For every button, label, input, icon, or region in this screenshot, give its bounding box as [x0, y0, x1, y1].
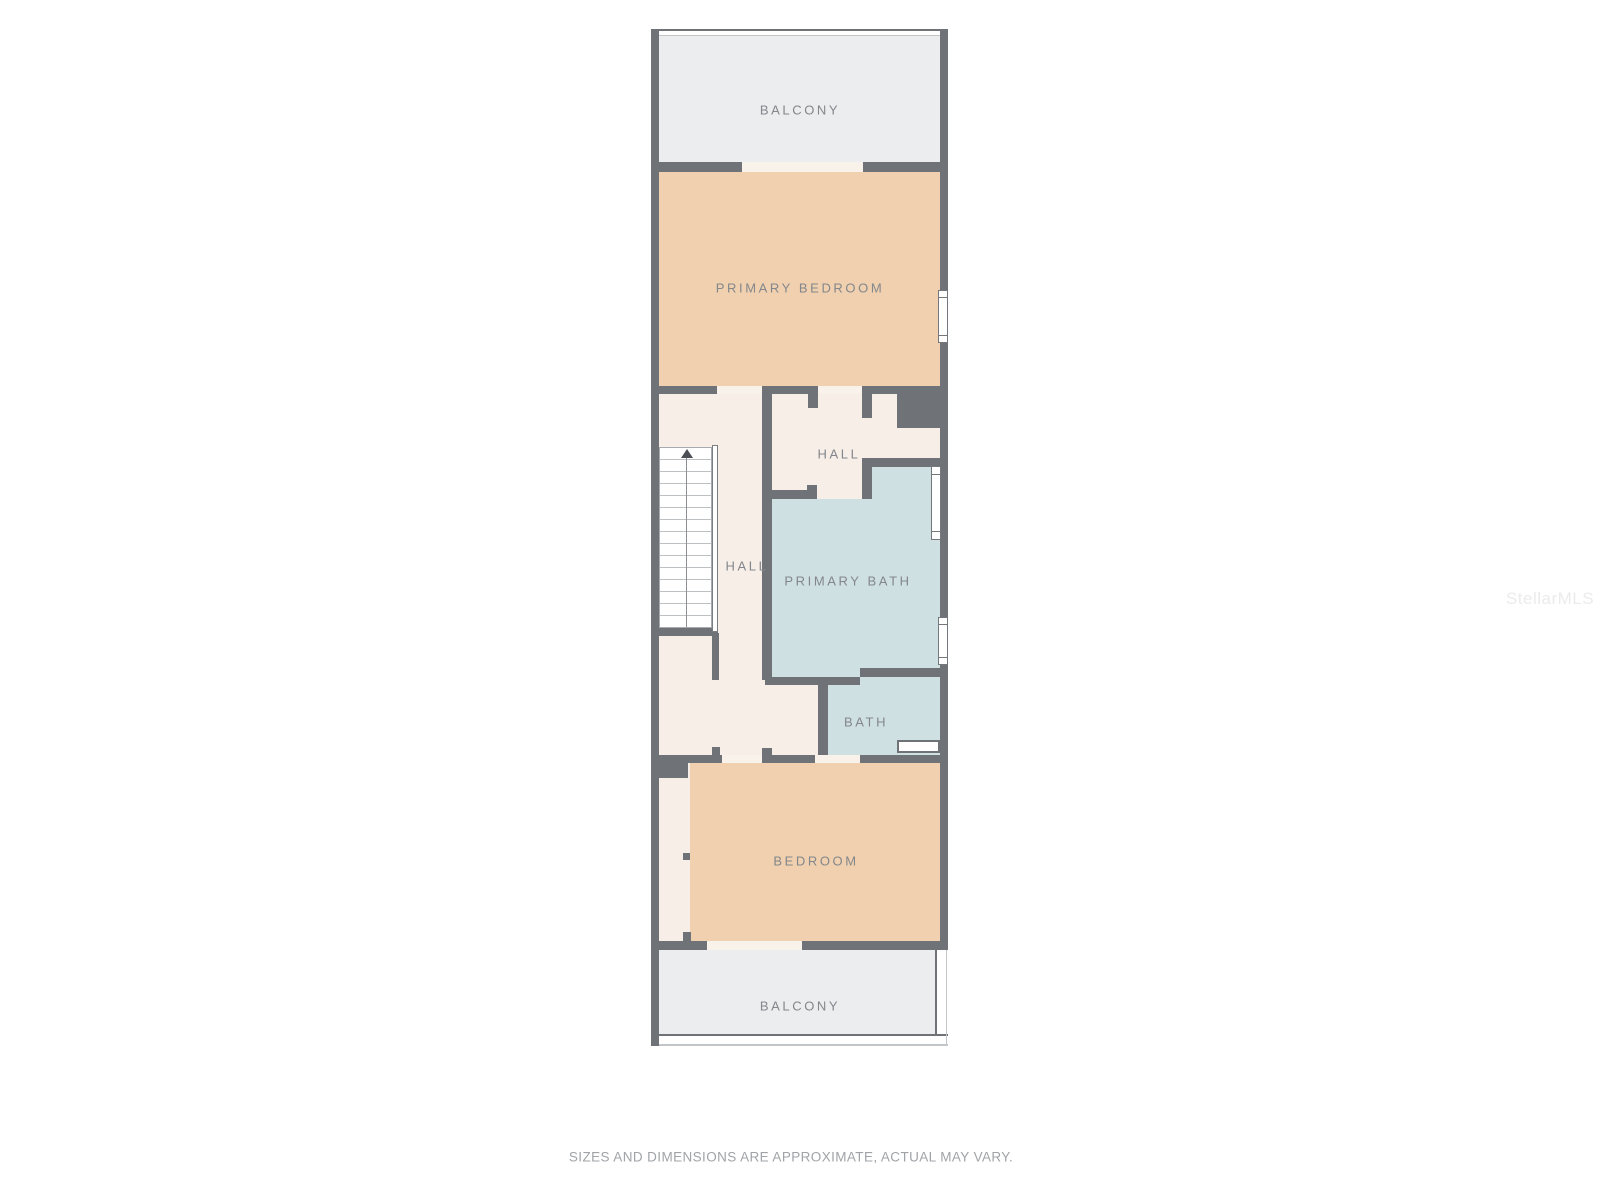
window [938, 617, 948, 665]
stair-direction-line [686, 456, 687, 627]
balcony-railing [651, 1044, 948, 1046]
wall [863, 162, 948, 172]
room-balcony-bottom [659, 950, 935, 1034]
wall [765, 677, 860, 685]
wall [651, 29, 659, 1046]
wall [818, 685, 828, 755]
door-opening [815, 755, 860, 763]
wall [762, 386, 772, 680]
wall [762, 755, 815, 763]
wall [860, 755, 948, 763]
footer-disclaimer: SIZES AND DIMENSIONS ARE APPROXIMATE, AC… [569, 1150, 1013, 1165]
watermark: StellarMLS [1506, 589, 1594, 609]
door-opening [717, 386, 762, 394]
wall [712, 747, 720, 755]
door-opening [707, 941, 802, 950]
wall [651, 941, 707, 950]
wall [862, 394, 872, 418]
balcony-railing [659, 35, 940, 36]
wall [651, 628, 718, 636]
label-primary-bath: PRIMARY BATH [784, 574, 911, 589]
balcony-railing [651, 1034, 948, 1036]
wall [897, 386, 948, 428]
room-primary-bath [772, 668, 860, 677]
wall [807, 485, 817, 490]
staircase [659, 447, 712, 628]
stair-up-arrow-icon [681, 449, 693, 458]
door-opening [742, 162, 863, 172]
room-bedroom [690, 763, 940, 941]
wall [802, 941, 948, 950]
window [938, 290, 948, 343]
wall [655, 763, 688, 778]
wall [712, 633, 719, 680]
room-primary-bath [872, 467, 940, 499]
wall [683, 853, 690, 860]
door-opening [722, 755, 762, 763]
wall [862, 458, 872, 499]
wall [765, 490, 817, 499]
balcony-railing [946, 950, 947, 1044]
bathroom-fixture [897, 740, 940, 753]
stair-railing [712, 445, 718, 632]
wall [860, 668, 948, 677]
room-balcony-top [651, 36, 948, 162]
door-opening [818, 386, 862, 394]
label-balcony-bottom: BALCONY [760, 999, 840, 1014]
label-bath: BATH [844, 715, 888, 730]
label-hall-stairs: HALL [726, 559, 769, 574]
window [931, 466, 941, 540]
label-hall-upper: HALL [818, 447, 861, 462]
wall [651, 162, 742, 172]
wall [808, 394, 818, 408]
wall [651, 755, 722, 763]
floorplan-canvas: BALCONY PRIMARY BEDROOM HALL HALL PRIMAR… [0, 0, 1600, 1200]
balcony-railing [935, 950, 937, 1036]
wall [651, 386, 717, 394]
label-balcony-top: BALCONY [760, 103, 840, 118]
label-bedroom: BEDROOM [773, 854, 858, 869]
balcony-railing [651, 29, 948, 31]
label-primary-bedroom: PRIMARY BEDROOM [716, 281, 885, 296]
room-primary-bedroom [651, 172, 948, 386]
